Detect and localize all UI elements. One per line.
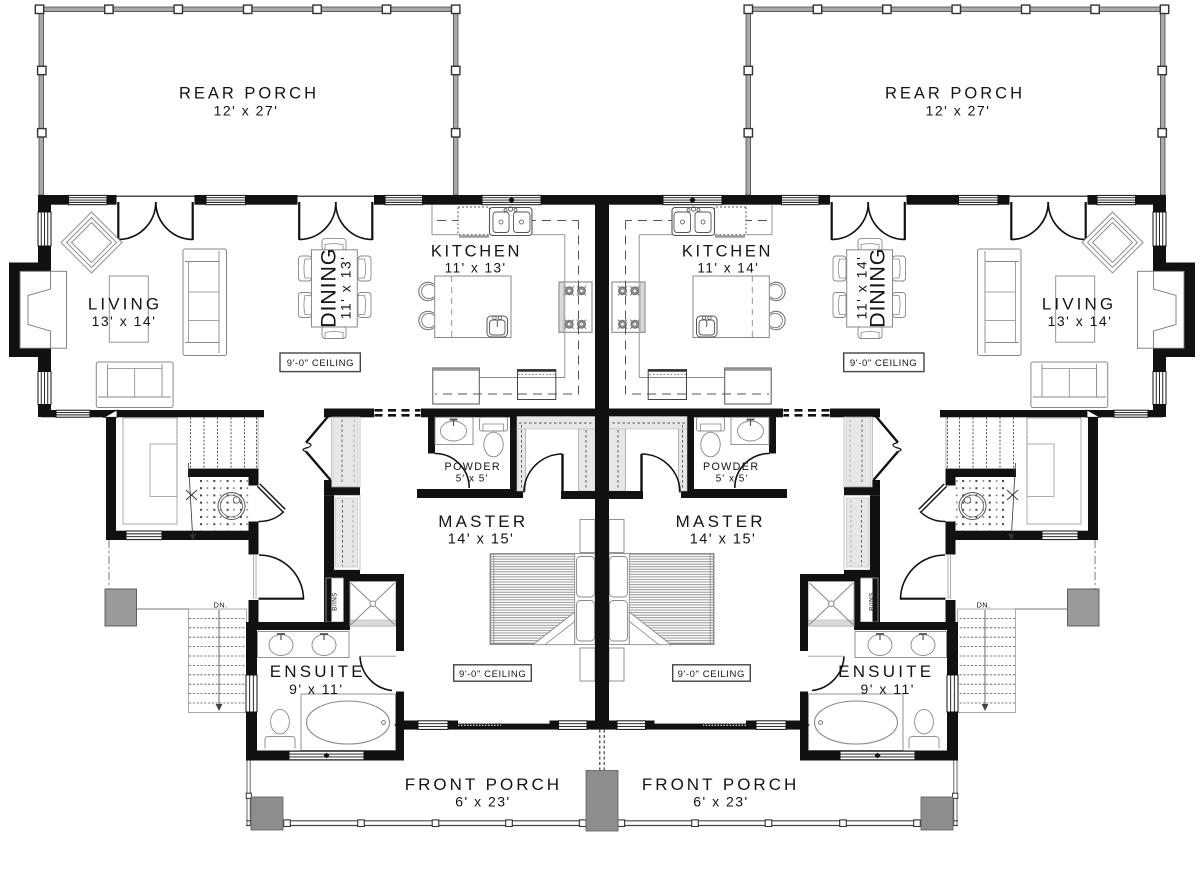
svg-text:B/INS: B/INS (869, 592, 876, 611)
svg-text:14' x 15': 14' x 15' (690, 532, 757, 548)
svg-text:MASTER: MASTER (676, 512, 766, 531)
svg-text:REAR PORCH: REAR PORCH (885, 85, 1025, 103)
svg-text:ENSUITE: ENSUITE (838, 662, 934, 681)
svg-text:POWDER: POWDER (445, 461, 502, 473)
svg-text:5' x 5': 5' x 5' (456, 473, 489, 484)
svg-text:11' x 13': 11' x 13' (445, 261, 507, 276)
svg-text:REAR PORCH: REAR PORCH (179, 85, 319, 103)
svg-text:14' x 15': 14' x 15' (448, 532, 515, 548)
svg-text:5' x 5': 5' x 5' (716, 473, 749, 484)
svg-text:11' x 14': 11' x 14' (697, 261, 759, 276)
svg-text:9'-0" CEILING: 9'-0" CEILING (678, 669, 745, 680)
svg-text:DN.: DN. (213, 601, 227, 610)
svg-text:KITCHEN: KITCHEN (431, 242, 522, 260)
svg-text:DN.: DN. (976, 601, 990, 610)
svg-text:FRONT PORCH: FRONT PORCH (405, 775, 562, 794)
svg-text:12' x 27': 12' x 27' (926, 102, 991, 118)
svg-text:9' x 11': 9' x 11' (860, 681, 914, 697)
svg-text:9'-0" CEILING: 9'-0" CEILING (459, 669, 526, 680)
svg-text:FRONT PORCH: FRONT PORCH (642, 775, 799, 794)
svg-text:LIVING: LIVING (88, 295, 162, 314)
svg-text:9'-0" CEILING: 9'-0" CEILING (850, 358, 917, 369)
svg-text:9' x 11': 9' x 11' (289, 681, 343, 697)
svg-text:KITCHEN: KITCHEN (682, 242, 773, 260)
svg-text:LIVING: LIVING (1042, 295, 1116, 314)
svg-text:12' x 27': 12' x 27' (214, 102, 279, 118)
svg-text:11' x 14': 11' x 14' (854, 256, 870, 320)
svg-text:13' x 14': 13' x 14' (1048, 313, 1113, 329)
svg-text:6' x 23': 6' x 23' (455, 794, 510, 810)
svg-text:MASTER: MASTER (438, 512, 528, 531)
svg-text:ENSUITE: ENSUITE (270, 662, 366, 681)
svg-text:11' x 13': 11' x 13' (338, 256, 354, 320)
svg-text:13' x 14': 13' x 14' (92, 313, 157, 329)
svg-text:POWDER: POWDER (703, 461, 760, 473)
svg-text:6' x 23': 6' x 23' (693, 794, 748, 810)
svg-text:9'-0" CEILING: 9'-0" CEILING (287, 358, 354, 369)
svg-text:B/INS: B/INS (332, 592, 339, 611)
